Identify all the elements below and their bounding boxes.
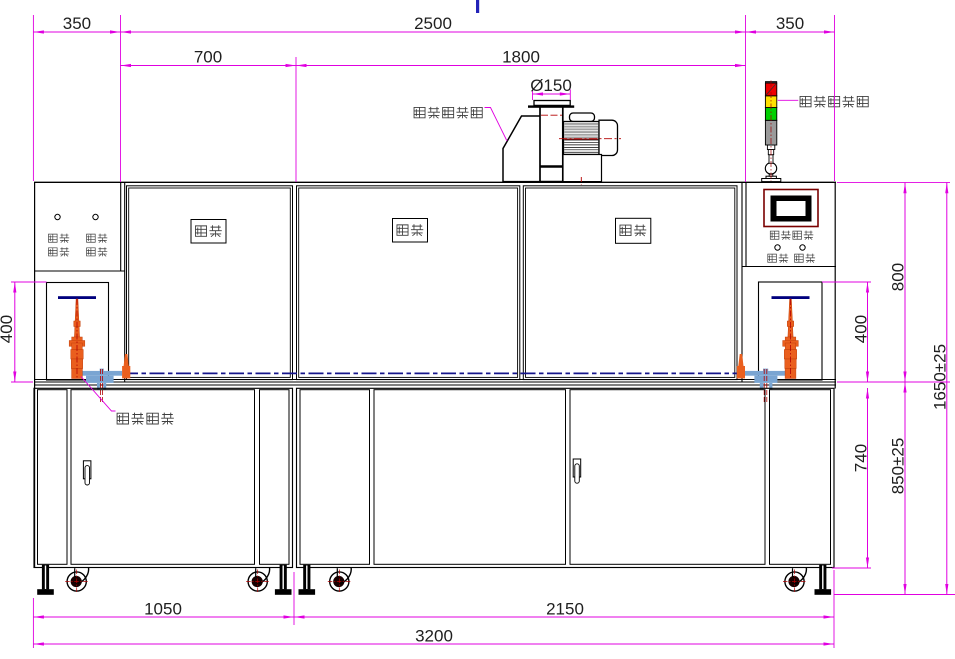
svg-text:1650±25: 1650±25: [931, 344, 950, 410]
svg-text:1050: 1050: [144, 600, 182, 619]
svg-text:740: 740: [851, 444, 870, 472]
svg-text:3200: 3200: [415, 627, 453, 646]
svg-text:1800: 1800: [502, 48, 540, 67]
svg-text:350: 350: [63, 14, 91, 33]
svg-text:350: 350: [776, 14, 804, 33]
svg-text:850±25: 850±25: [888, 438, 907, 495]
svg-text:2500: 2500: [414, 14, 452, 33]
svg-text:2150: 2150: [546, 600, 584, 619]
svg-text:Ø150: Ø150: [530, 76, 572, 95]
svg-text:700: 700: [194, 48, 222, 67]
svg-text:400: 400: [851, 315, 870, 343]
svg-text:800: 800: [888, 263, 907, 291]
svg-text:400: 400: [0, 315, 16, 343]
